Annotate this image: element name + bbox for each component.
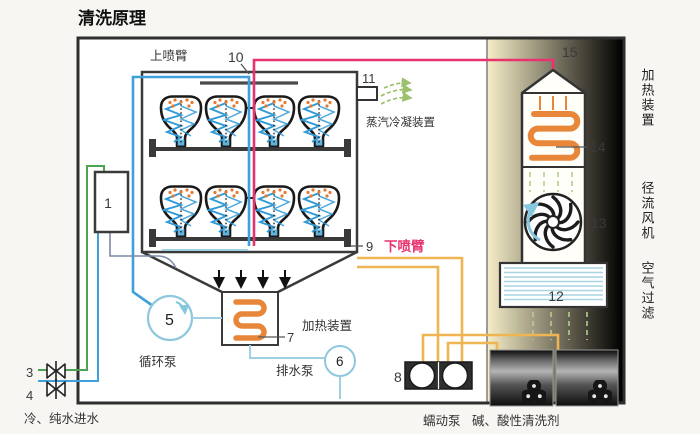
number-8: 8 <box>394 369 402 385</box>
air-filter-label: 空气过滤 <box>640 261 655 321</box>
number-6: 6 <box>336 354 344 369</box>
peristaltic-pump-label: 蠕动泵 <box>423 414 461 428</box>
number-14: 14 <box>590 139 606 155</box>
page-title: 清洗原理 <box>78 8 146 28</box>
diagram-page: 清洗原理 7 加热装置 <box>0 0 700 434</box>
upper-spray-arm-label: 上喷臂 <box>150 49 188 63</box>
steam-outlet <box>357 87 377 100</box>
radial-fan <box>525 194 581 250</box>
detergent-label: 碱、酸性清洗剂 <box>472 413 560 428</box>
water-inlet-label: 冷、纯水进水 <box>24 412 100 426</box>
number-13: 13 <box>591 215 607 231</box>
radial-fan-label: 径流风机 <box>640 181 655 241</box>
number-7: 7 <box>287 330 294 345</box>
tower-heater-label: 加热装置 <box>640 68 655 128</box>
number-10: 10 <box>228 49 244 65</box>
number-11: 11 <box>362 71 376 86</box>
drain-pump-label: 排水泵 <box>276 364 314 378</box>
number-15: 15 <box>562 44 578 60</box>
number-1: 1 <box>104 195 112 211</box>
number-3: 3 <box>26 365 33 380</box>
sump-heater-label: 加热装置 <box>302 319 352 333</box>
detergent-container <box>490 350 553 406</box>
lower-spray-arm-label: 下喷臂 <box>384 238 425 254</box>
cleaning-principle-diagram: 清洗原理 7 加热装置 <box>0 0 700 434</box>
steam-condenser-label: 蒸汽冷凝装置 <box>366 115 435 129</box>
number-12: 12 <box>548 288 564 304</box>
peristaltic-pump <box>405 362 472 389</box>
number-9: 9 <box>366 239 373 254</box>
circulation-pump-label: 循环泵 <box>139 355 177 369</box>
number-5: 5 <box>165 312 174 329</box>
water-valve-3 <box>47 361 65 381</box>
number-4: 4 <box>26 388 33 403</box>
detergent-container <box>556 350 618 406</box>
